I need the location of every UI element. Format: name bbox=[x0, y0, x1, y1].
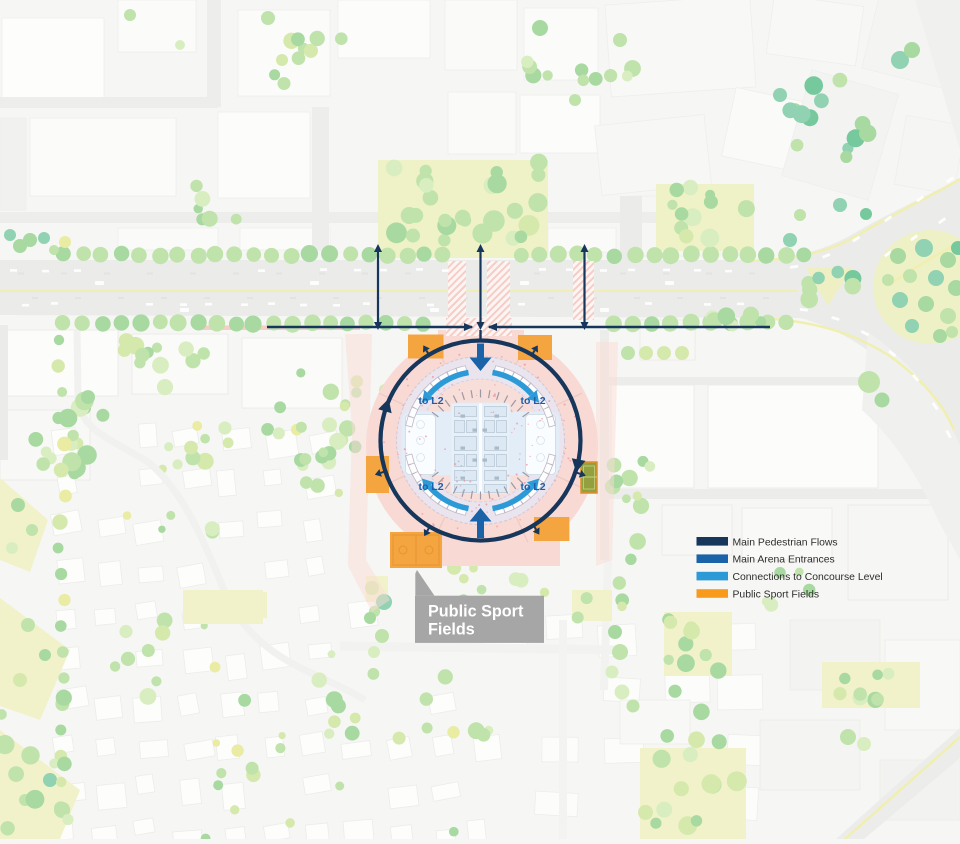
svg-text:to L2: to L2 bbox=[520, 481, 545, 493]
svg-text:to L2: to L2 bbox=[418, 481, 443, 493]
svg-text:to L2: to L2 bbox=[418, 395, 443, 407]
svg-text:Connections to Concourse Level: Connections to Concourse Level bbox=[733, 572, 883, 583]
svg-text:Fields: Fields bbox=[428, 621, 475, 639]
svg-text:to L2: to L2 bbox=[520, 395, 545, 407]
svg-text:Main Arena Entrances: Main Arena Entrances bbox=[733, 555, 835, 566]
svg-text:Main Pedestrian Flows: Main Pedestrian Flows bbox=[733, 537, 838, 548]
svg-text:Public Sport: Public Sport bbox=[428, 603, 524, 621]
svg-text:Public Sport Fields: Public Sport Fields bbox=[733, 590, 820, 601]
